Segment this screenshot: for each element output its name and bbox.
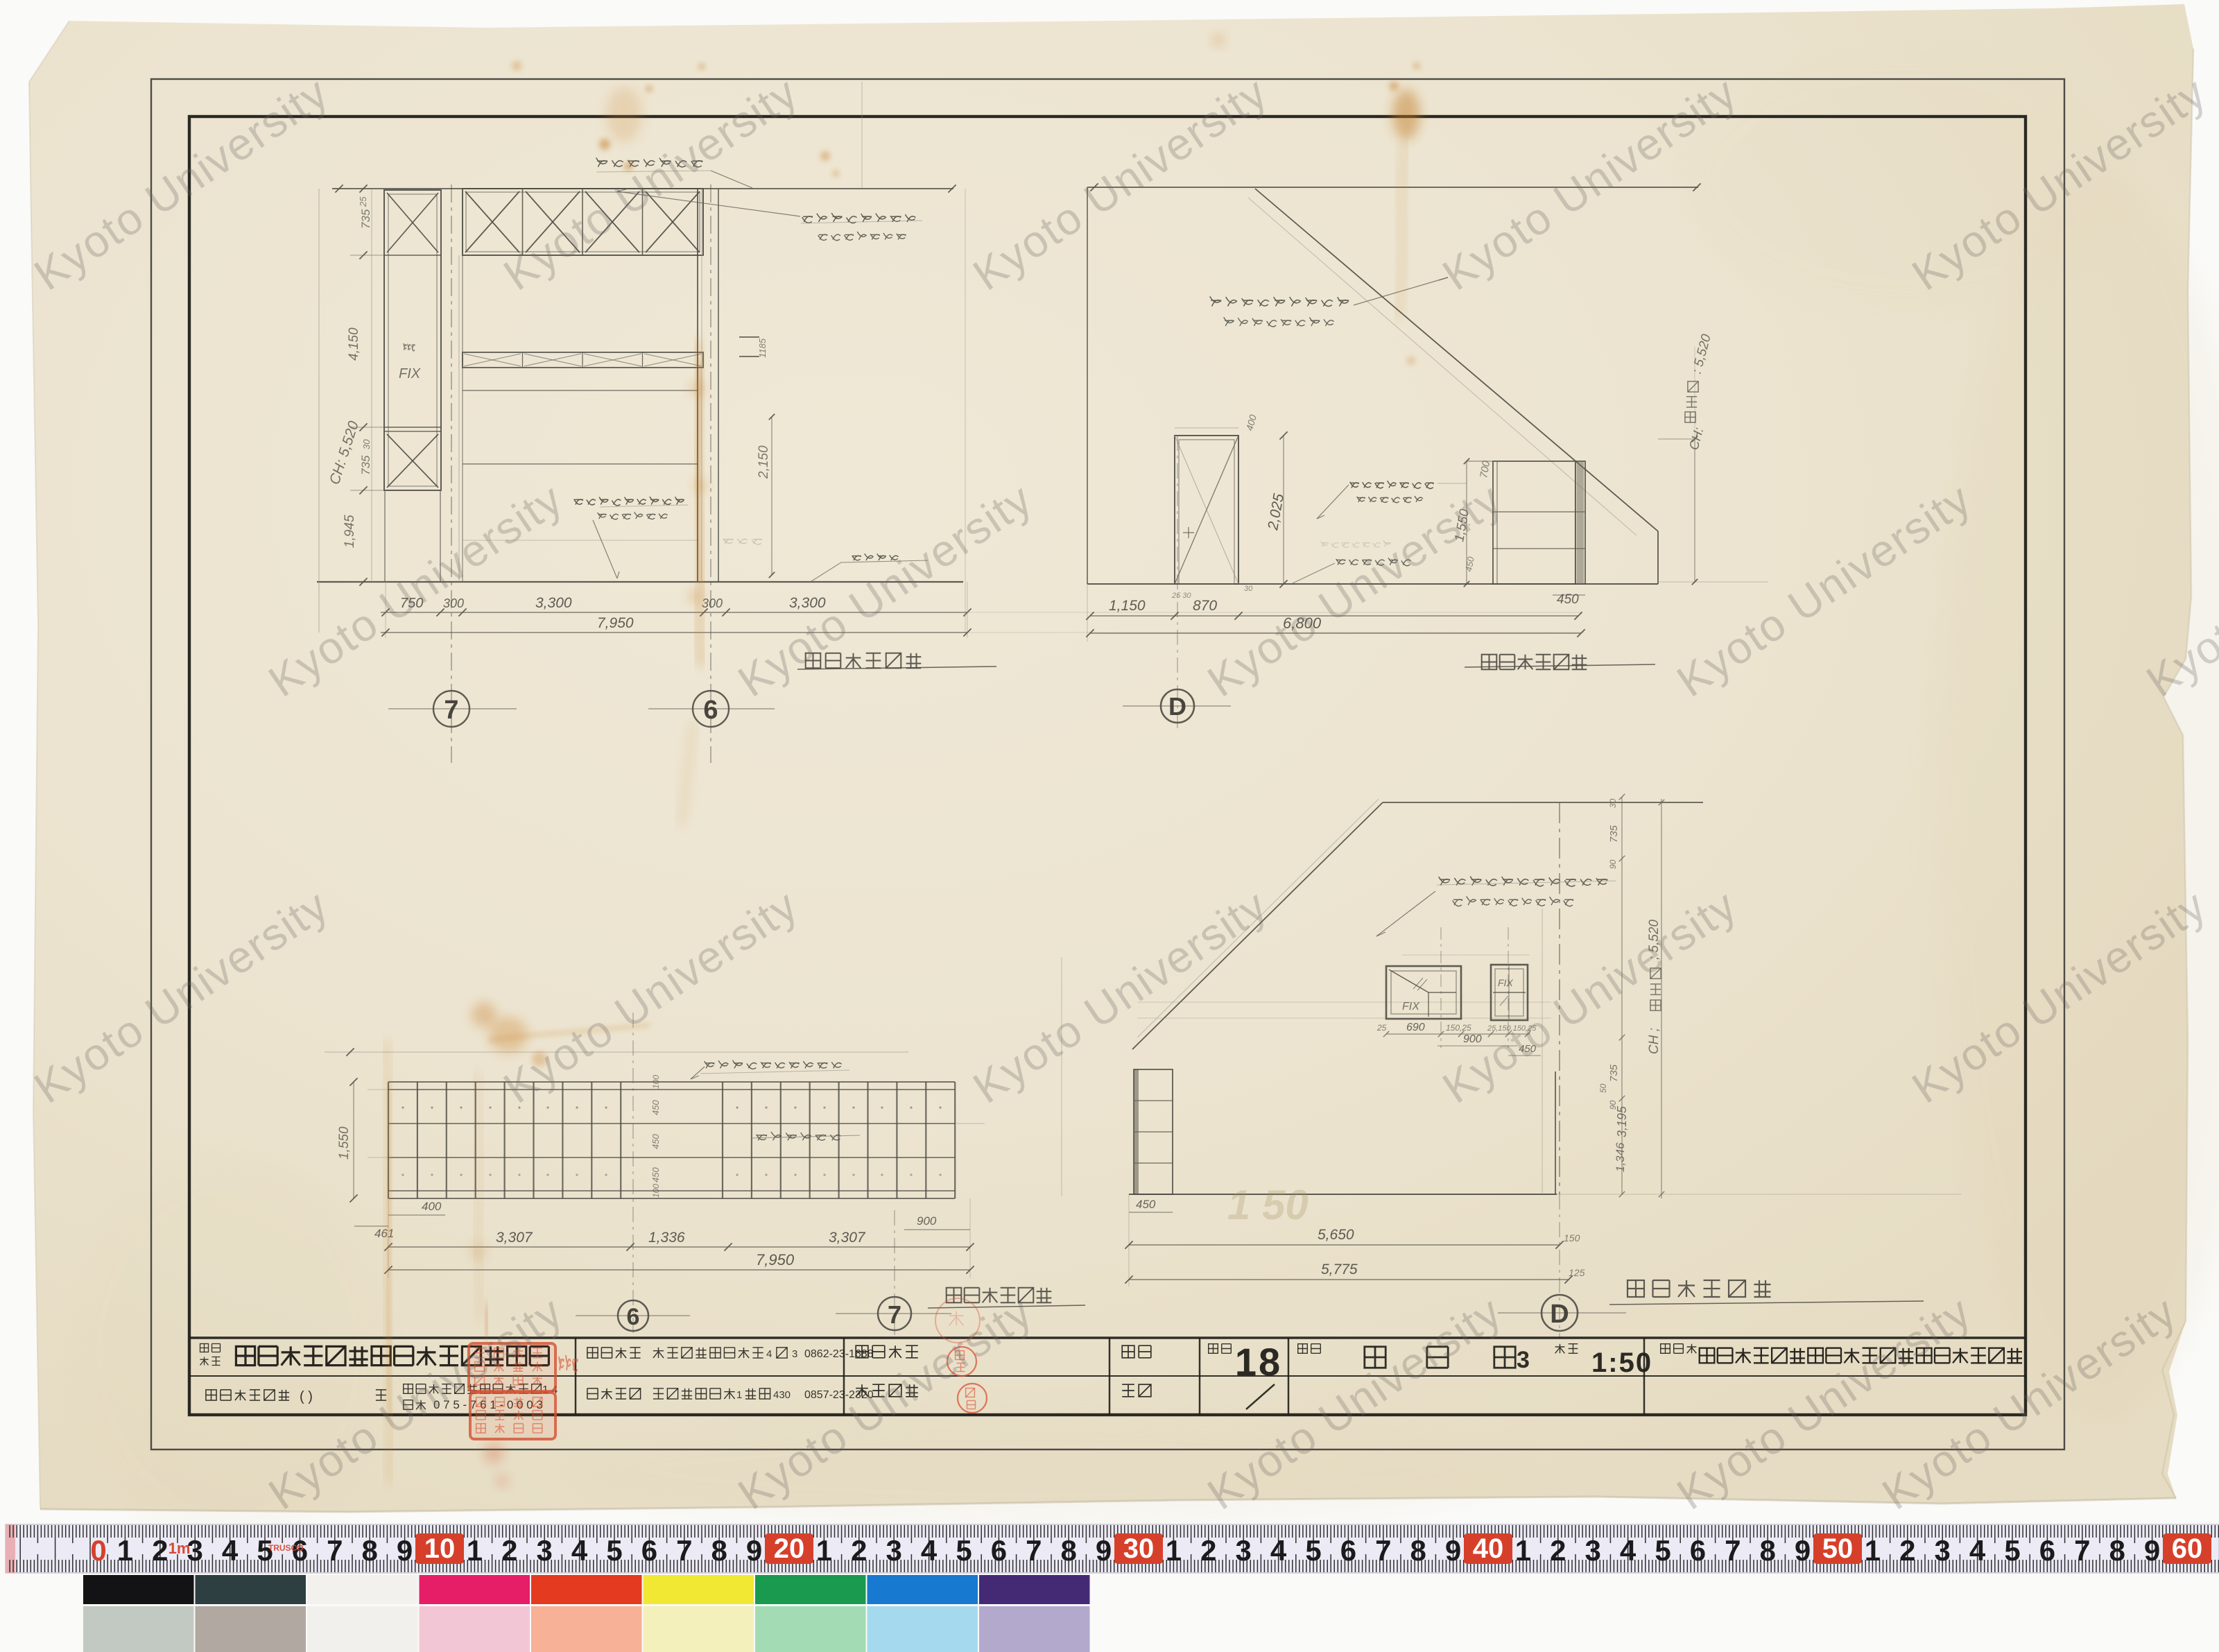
svg-text:8: 8 <box>711 1534 727 1567</box>
svg-text:25: 25 <box>358 196 368 207</box>
svg-text:3,307: 3,307 <box>496 1230 533 1246</box>
svg-text:1,150: 1,150 <box>1109 598 1146 614</box>
svg-text:7: 7 <box>2074 1534 2090 1567</box>
svg-text:FIX: FIX <box>399 366 421 381</box>
svg-text:7,950: 7,950 <box>756 1251 795 1268</box>
svg-text:1: 1 <box>1865 1534 1881 1567</box>
svg-text:7: 7 <box>327 1534 343 1567</box>
svg-text:150,25: 150,25 <box>1446 1023 1471 1033</box>
svg-text:450: 450 <box>650 1167 661 1182</box>
svg-text:125: 125 <box>1569 1267 1585 1278</box>
svg-text:9: 9 <box>1445 1534 1461 1567</box>
svg-text:CH ;: CH ; <box>1647 1028 1661 1054</box>
svg-text:7: 7 <box>444 696 458 725</box>
svg-text:2: 2 <box>501 1534 517 1567</box>
svg-text:60: 60 <box>2172 1533 2203 1564</box>
svg-text:450: 450 <box>650 1100 661 1115</box>
svg-text:50: 50 <box>1822 1533 1854 1564</box>
svg-text:4: 4 <box>1969 1534 1986 1567</box>
svg-text:5: 5 <box>606 1534 622 1567</box>
svg-text:TRUSCO: TRUSCO <box>268 1543 304 1553</box>
svg-text:7: 7 <box>676 1534 692 1567</box>
svg-text:450: 450 <box>650 1134 661 1149</box>
svg-text:2: 2 <box>851 1534 867 1567</box>
svg-text:3: 3 <box>1517 1347 1530 1373</box>
svg-text:450: 450 <box>1136 1198 1156 1211</box>
svg-text:2,150: 2,150 <box>757 445 771 479</box>
svg-text:6: 6 <box>1340 1534 1356 1567</box>
svg-text:1185: 1185 <box>757 338 768 358</box>
svg-text:3: 3 <box>537 1534 553 1567</box>
svg-text:9: 9 <box>2144 1534 2160 1567</box>
svg-text:30: 30 <box>1123 1533 1155 1564</box>
svg-text:8: 8 <box>1760 1534 1776 1567</box>
svg-text:20: 20 <box>774 1533 805 1564</box>
svg-text:2: 2 <box>1550 1534 1566 1567</box>
svg-text:1: 1 <box>1166 1534 1182 1567</box>
svg-text:4,150: 4,150 <box>347 327 361 361</box>
svg-text:6: 6 <box>703 696 718 725</box>
svg-text:8: 8 <box>362 1534 378 1567</box>
svg-text:6: 6 <box>2039 1534 2055 1567</box>
svg-text:5: 5 <box>2004 1534 2020 1567</box>
svg-text:5: 5 <box>956 1534 972 1567</box>
svg-text:4: 4 <box>1620 1534 1637 1567</box>
svg-text:100: 100 <box>651 1184 661 1198</box>
svg-text:5,650: 5,650 <box>1318 1227 1354 1243</box>
svg-text:3,300: 3,300 <box>535 595 572 611</box>
svg-text:6: 6 <box>641 1534 657 1567</box>
svg-text:2: 2 <box>1899 1534 1915 1567</box>
svg-text:900: 900 <box>917 1214 937 1228</box>
svg-text:100: 100 <box>651 1075 661 1089</box>
svg-text:4: 4 <box>1270 1534 1287 1567</box>
svg-text:6: 6 <box>991 1534 1007 1567</box>
svg-text:FIX: FIX <box>1498 977 1513 988</box>
svg-text:9: 9 <box>1795 1534 1811 1567</box>
svg-text:3: 3 <box>1236 1534 1252 1567</box>
svg-text:150: 150 <box>1564 1232 1580 1244</box>
svg-text:1m: 1m <box>169 1540 191 1557</box>
svg-text:735: 735 <box>359 455 372 475</box>
svg-text:735: 735 <box>1608 825 1620 843</box>
svg-text:7: 7 <box>1026 1534 1042 1567</box>
svg-text:1,336: 1,336 <box>648 1230 685 1246</box>
svg-text:9: 9 <box>397 1534 413 1567</box>
svg-text:1: 1 <box>816 1534 832 1567</box>
svg-text:3: 3 <box>886 1534 902 1567</box>
svg-text:400: 400 <box>422 1200 442 1213</box>
svg-text:4: 4 <box>222 1534 239 1567</box>
svg-text:6: 6 <box>1690 1534 1706 1567</box>
svg-text:6: 6 <box>627 1304 640 1330</box>
svg-text:5: 5 <box>1655 1534 1670 1567</box>
svg-text:735: 735 <box>359 209 372 229</box>
svg-text:25: 25 <box>1376 1023 1387 1033</box>
svg-text:8: 8 <box>2109 1534 2125 1567</box>
svg-text:3,307: 3,307 <box>829 1230 866 1246</box>
svg-text:9: 9 <box>1096 1534 1112 1567</box>
svg-text:7: 7 <box>1375 1534 1391 1567</box>
svg-text:2: 2 <box>152 1534 168 1567</box>
svg-text:3: 3 <box>1935 1534 1951 1567</box>
svg-text:30: 30 <box>1608 798 1618 808</box>
svg-text:1: 1 <box>736 1389 742 1401</box>
svg-text:18: 18 <box>1235 1340 1282 1384</box>
svg-text:4: 4 <box>766 1348 772 1360</box>
svg-text:430: 430 <box>773 1389 791 1401</box>
svg-text:4: 4 <box>921 1534 938 1567</box>
svg-text:1: 1 <box>1515 1534 1531 1567</box>
svg-text:7: 7 <box>888 1300 901 1329</box>
svg-text:3: 3 <box>1585 1534 1601 1567</box>
svg-text:870: 870 <box>1193 598 1217 614</box>
svg-text:30: 30 <box>361 439 372 449</box>
svg-text:1: 1 <box>117 1534 133 1567</box>
svg-text:90: 90 <box>1608 859 1618 869</box>
svg-text:D: D <box>1550 1300 1569 1329</box>
svg-text:7: 7 <box>1725 1534 1741 1567</box>
svg-text:690: 690 <box>1406 1022 1425 1033</box>
svg-text:8: 8 <box>1061 1534 1077 1567</box>
svg-text:9: 9 <box>746 1534 762 1567</box>
svg-text:8: 8 <box>1410 1534 1426 1567</box>
svg-text:5,775: 5,775 <box>1321 1262 1358 1277</box>
svg-text:25 30: 25 30 <box>1171 592 1191 600</box>
svg-text:40: 40 <box>1473 1533 1504 1564</box>
svg-text:1,346: 1,346 <box>1614 1142 1627 1172</box>
svg-text:7,950: 7,950 <box>597 615 634 631</box>
svg-text:50: 50 <box>1598 1083 1608 1093</box>
svg-text:D: D <box>1168 692 1186 721</box>
svg-text:30: 30 <box>1244 585 1253 593</box>
svg-text:450: 450 <box>1557 592 1579 607</box>
svg-text:3: 3 <box>792 1348 797 1360</box>
svg-text:10: 10 <box>424 1533 456 1564</box>
svg-text:1,945: 1,945 <box>343 515 357 548</box>
svg-text:1: 1 <box>467 1534 483 1567</box>
svg-text:FIX: FIX <box>1402 1001 1420 1013</box>
svg-text:( ): ( ) <box>300 1389 313 1404</box>
svg-text:2: 2 <box>1200 1534 1216 1567</box>
svg-text:1:50: 1:50 <box>1591 1348 1652 1378</box>
svg-text:0: 0 <box>90 1534 106 1567</box>
svg-text:4: 4 <box>571 1534 588 1567</box>
svg-text:1 50: 1 50 <box>1227 1182 1309 1228</box>
svg-text:1,550: 1,550 <box>337 1126 352 1160</box>
svg-text:3,195: 3,195 <box>1615 1105 1629 1137</box>
svg-text:735: 735 <box>1608 1064 1620 1082</box>
svg-text:5: 5 <box>1305 1534 1321 1567</box>
